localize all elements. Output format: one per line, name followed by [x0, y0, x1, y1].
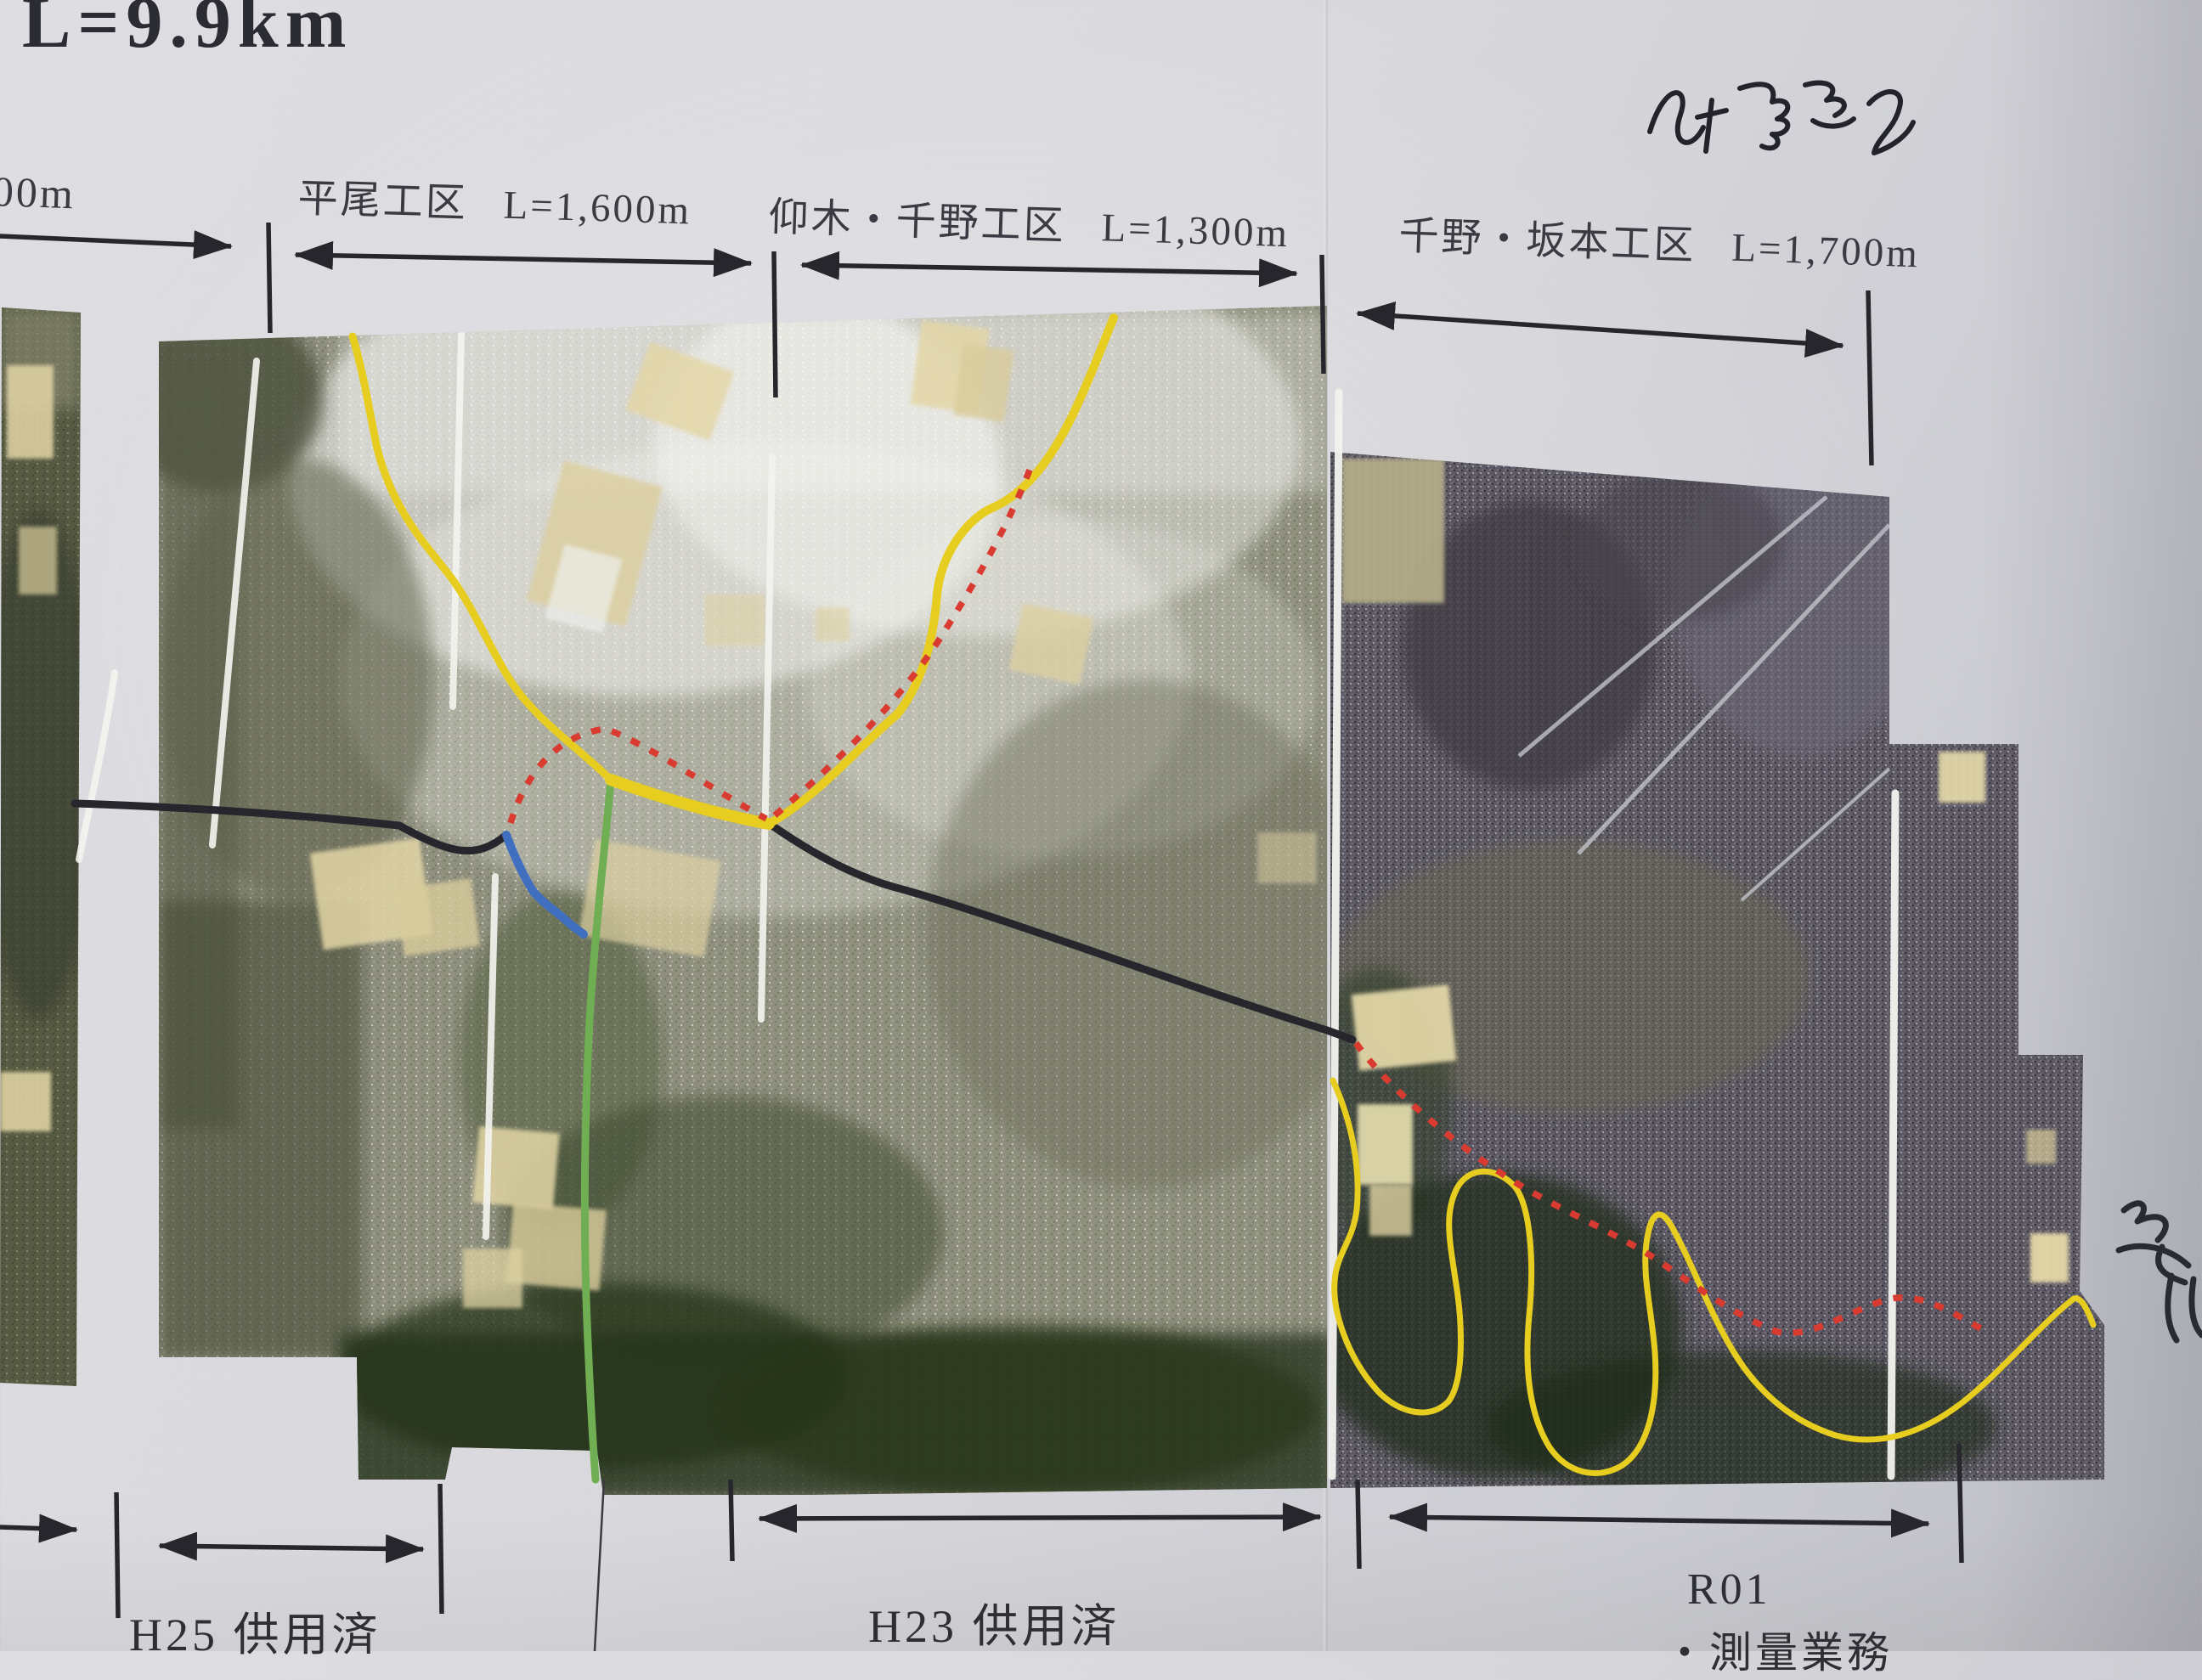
photo-panel-main [119, 246, 1368, 1499]
handwritten-note-right-edge [2119, 1204, 2202, 1340]
white-line-left-strip [79, 673, 115, 860]
white-section-lines-right [1891, 793, 1895, 1476]
thin-survey-line [595, 1480, 604, 1651]
photo-panel-right [1300, 433, 2107, 1503]
photographed-route-map-document: { "title": { "total_length_partial": "L=… [0, 0, 2202, 1651]
aerial-map-graphic [0, 0, 2202, 1651]
handwritten-note-top-right [1650, 83, 1913, 153]
